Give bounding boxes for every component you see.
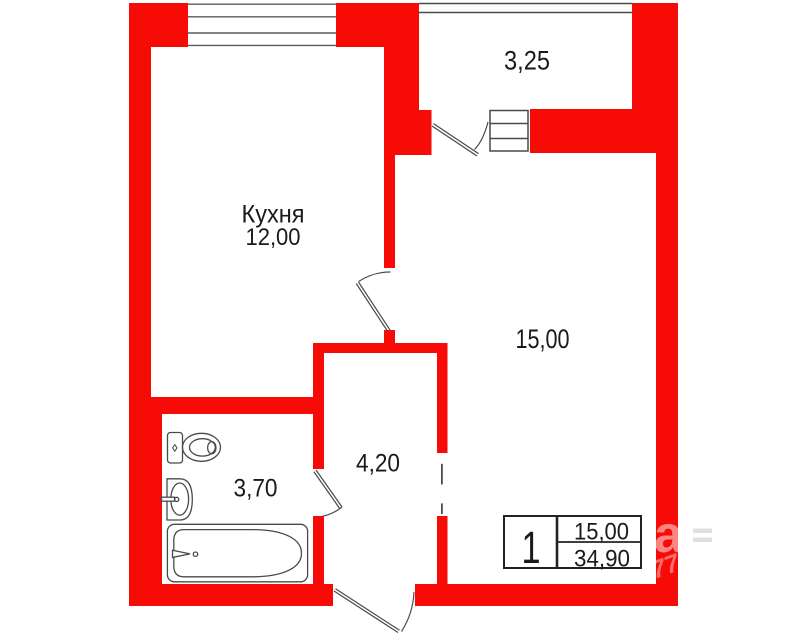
- svg-text:34,90: 34,90: [574, 545, 630, 572]
- svg-text:15,00: 15,00: [574, 518, 629, 545]
- svg-text:4,20: 4,20: [356, 450, 400, 478]
- svg-text:3,25: 3,25: [504, 45, 550, 75]
- svg-text:15,00: 15,00: [516, 324, 570, 354]
- svg-text:12,00: 12,00: [246, 224, 301, 251]
- svg-text:3,70: 3,70: [234, 475, 278, 503]
- svg-text:1: 1: [522, 522, 541, 573]
